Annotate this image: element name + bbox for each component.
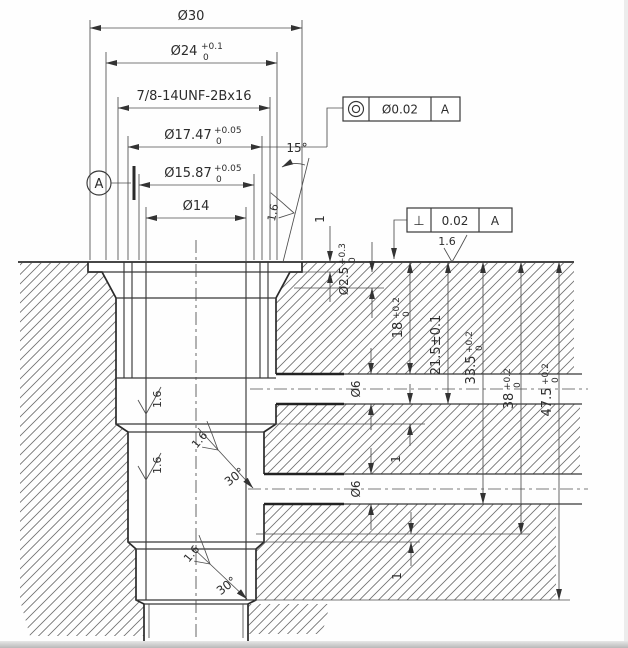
dim-label: Ø6 xyxy=(349,380,363,397)
dim-tol-upper: +0.05 xyxy=(214,126,242,136)
angle-label: 30° xyxy=(214,574,239,598)
engineering-drawing-page: Ø30 Ø24 +0.1 0 7/8-14UNF-2Bx16 Ø17.47 +0… xyxy=(0,0,628,648)
roughness-value: 1.6 xyxy=(265,203,281,223)
dim-tol-lower: 0 xyxy=(203,53,209,63)
dim-tol-lower: 0 xyxy=(402,311,412,317)
datum-a-symbol: A xyxy=(87,166,134,200)
dim-bore-14: Ø14 xyxy=(146,199,246,218)
dim-tol-lower: 0 xyxy=(475,345,485,351)
scan-edge-right xyxy=(624,0,628,648)
dim-bore-17-47: Ø17.47 +0.05 0 xyxy=(128,126,262,147)
dim-tol-lower: 0 xyxy=(513,382,523,388)
chamfer-callout-1: 1.6 30° xyxy=(189,421,253,489)
dim-label: Ø15.87 xyxy=(164,166,211,181)
dim-label: Ø2.5 xyxy=(337,267,351,296)
roughness-value: 1.6 xyxy=(151,457,164,475)
gdt-perpendicularity-frame: ⊥ 0.02 A xyxy=(394,208,512,259)
dim-tol-upper: +0.2 xyxy=(503,368,513,390)
gdt-concentricity-frame: Ø0.02 A xyxy=(262,97,460,147)
dim-label: Ø6 xyxy=(349,480,363,497)
dim-tol-lower: 0 xyxy=(348,257,358,263)
dim-label: 33.5 xyxy=(464,356,479,385)
dim-tol-lower: 0 xyxy=(216,137,222,147)
scan-edge-bottom xyxy=(0,641,628,648)
thread-spec: 7/8-14UNF-2Bx16 xyxy=(137,89,252,104)
surface-finish-bore-upper: 1.6 xyxy=(138,387,164,414)
dim-label: Ø14 xyxy=(183,199,210,214)
datum-letter: A xyxy=(95,177,104,192)
dim-label: 38 xyxy=(502,393,517,410)
section-drawing: Ø30 Ø24 +0.1 0 7/8-14UNF-2Bx16 Ø17.47 +0… xyxy=(0,0,628,648)
dim-tol-upper: +0.05 xyxy=(214,164,242,174)
dim-label: 1 xyxy=(390,572,404,580)
gdt-tolerance: Ø0.02 xyxy=(382,103,418,117)
dim-tol-upper: +0.2 xyxy=(541,363,551,385)
dim-label: 18 xyxy=(391,322,406,339)
dim-counterbore-24: Ø24 +0.1 0 xyxy=(106,42,277,63)
dim-tol-upper: +0.2 xyxy=(465,331,475,353)
dim-label: 21.5±0.1 xyxy=(429,315,444,376)
roughness-value: 1.6 xyxy=(438,235,456,248)
gdt-datum-ref: A xyxy=(491,214,500,228)
dim-label: Ø17.47 xyxy=(164,128,211,143)
dim-tol-upper: +0.1 xyxy=(201,42,223,52)
dim-bore-15-87: Ø15.87 +0.05 0 xyxy=(139,164,254,185)
angle-label: 15° xyxy=(286,141,307,155)
dim-label: 1 xyxy=(313,215,327,223)
dim-label: Ø24 xyxy=(171,44,198,59)
dim-label: Ø30 xyxy=(178,9,205,24)
roughness-value: 1.6 xyxy=(151,391,164,409)
dim-label: 1 xyxy=(389,455,403,463)
roughness-value: 1.6 xyxy=(181,543,202,565)
dim-outer-diameter-30: Ø30 xyxy=(90,9,302,28)
gdt-tolerance: 0.02 xyxy=(442,214,469,228)
dim-tol-lower: 0 xyxy=(551,377,561,383)
perpendicularity-icon: ⊥ xyxy=(413,214,424,229)
angle-label: 30° xyxy=(222,465,247,489)
dim-label: 47.5 xyxy=(540,388,555,417)
surface-finish-bore-lower: 1.6 xyxy=(138,453,164,480)
gdt-datum-ref: A xyxy=(441,103,450,117)
housing-hatch xyxy=(20,263,580,636)
surface-finish-top-face: 1.6 xyxy=(438,235,467,262)
chamfer-callout-2: 1.6 30° xyxy=(181,535,247,599)
dim-tol-upper: +0.2 xyxy=(392,297,402,319)
dim-tol-lower: 0 xyxy=(216,175,222,185)
dim-tol-upper: +0.3 xyxy=(338,243,348,265)
dim-thread-callout: 7/8-14UNF-2Bx16 xyxy=(118,89,270,108)
